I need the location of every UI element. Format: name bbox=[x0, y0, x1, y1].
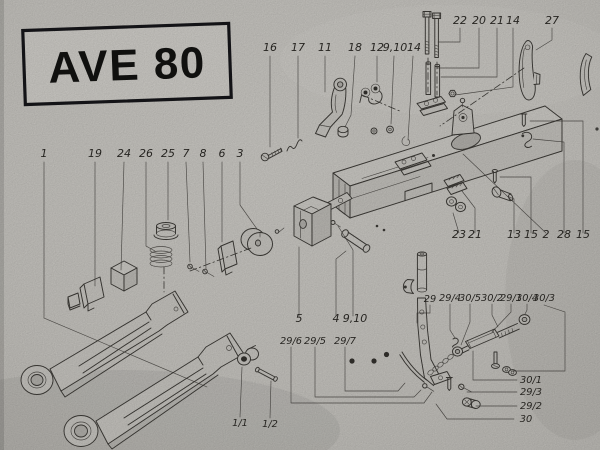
diagram-canvas: AVE 80 bbox=[0, 0, 600, 450]
scanned-parts-diagram: AVE 80 bbox=[0, 0, 600, 450]
scan-grain-overlay bbox=[0, 0, 600, 450]
